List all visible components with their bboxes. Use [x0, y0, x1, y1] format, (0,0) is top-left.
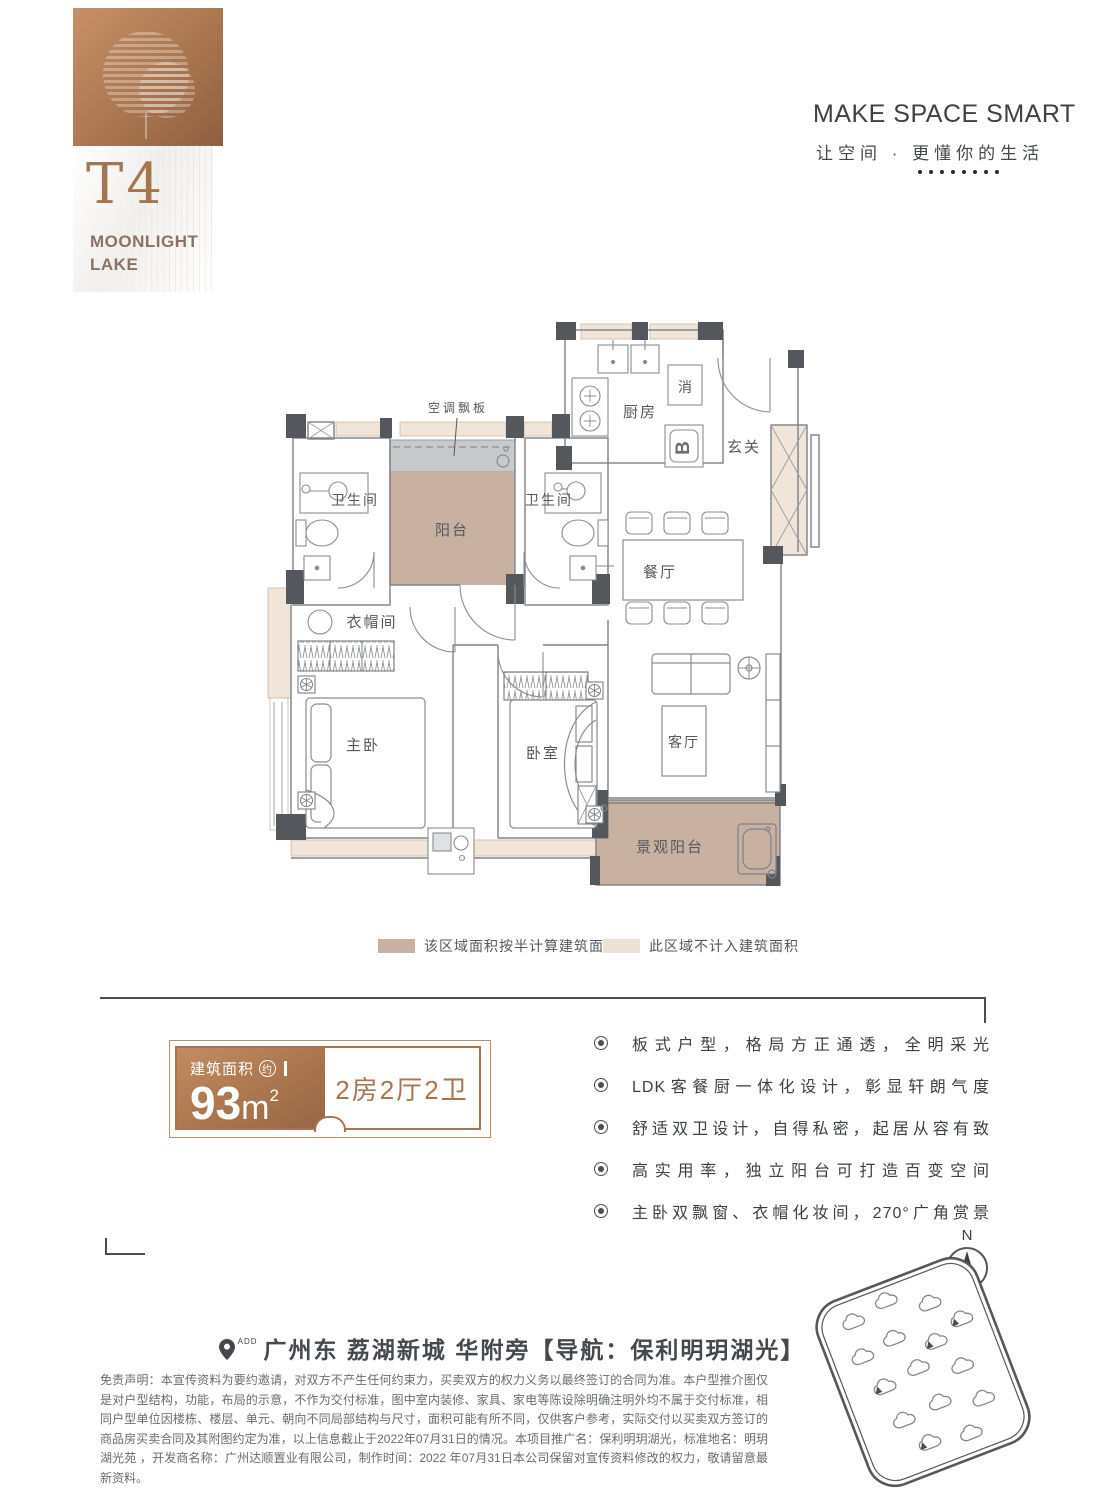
- fridge-label: B: [673, 441, 694, 455]
- bedroom-bed: [510, 700, 597, 828]
- project-name-line1: MOONLIGHT: [90, 230, 198, 253]
- legend-half-area: 该区域面积按半计算建筑面积: [378, 936, 619, 956]
- divider-rule: [100, 997, 986, 999]
- room-label-bath-left: 卫生间: [331, 492, 379, 508]
- disclaimer-text: 免责声明：本宣传资料为要约邀请，对双方不产生任何约束力，买卖双方的权力义务以最终…: [100, 1371, 768, 1488]
- ac-board-annotation: 空调飘板: [428, 401, 488, 415]
- room-label-bath-right: 卫生间: [525, 492, 573, 508]
- room-label-dining: 餐厅: [643, 564, 677, 581]
- legend-excluded-area-label: 此区域不计入建筑面积: [649, 936, 799, 956]
- approx-mark: 约: [259, 1060, 276, 1077]
- spec-area-panel: 建筑面积 约 93m2: [177, 1048, 325, 1128]
- room-label-bedroom: 卧室: [526, 745, 560, 762]
- location-pin-icon: [219, 1339, 235, 1360]
- unit-code: T4: [86, 152, 165, 217]
- room-label-foyer: 玄关: [727, 439, 761, 456]
- corridor-basin: [428, 828, 474, 874]
- feature-list: 板式户型，格局方正通透，全明采光 LDK客餐厨一体化设计，彰显轩朗气度 舒适双卫…: [594, 1022, 990, 1232]
- room-label-kitchen: 厨房: [623, 404, 657, 421]
- feature-item: LDK客餐厨一体化设计，彰显轩朗气度: [594, 1064, 990, 1106]
- area-bar-decor: [284, 1061, 287, 1076]
- legend-half-area-label: 该区域面积按半计算建筑面积: [424, 936, 619, 956]
- room-label-balcony: 阳台: [435, 522, 469, 539]
- spec-layout: 2房2厅2卫: [335, 1070, 468, 1107]
- compass-label: N: [962, 1227, 973, 1244]
- address-text: 广州东 荔湖新城 华附旁【导航：保利明玥湖光】: [264, 1337, 806, 1363]
- room-label-view-balcony: 景观阳台: [636, 839, 704, 856]
- decor-dots: [918, 170, 999, 174]
- bullet-icon: [594, 1204, 608, 1218]
- bullet-icon: [594, 1036, 608, 1050]
- wardrobes: [298, 641, 588, 700]
- bullet-icon: [594, 1120, 608, 1134]
- site-plot: [809, 1250, 1038, 1492]
- legend-excluded-area-swatch: [603, 939, 640, 953]
- room-label-cloakroom: 衣帽间: [346, 614, 397, 631]
- spec-area-value: 93m2: [190, 1080, 325, 1126]
- feature-item: 板式户型，格局方正通透，全明采光: [594, 1022, 990, 1064]
- extinguisher-label: 消: [678, 379, 692, 395]
- living-furniture: [652, 654, 780, 792]
- ac-board-zone: [390, 440, 515, 472]
- brand-logo-square: [73, 8, 223, 146]
- cloakroom-stool: [308, 610, 332, 634]
- master-bed: [306, 698, 425, 828]
- slogan-cn: 让空间 · 更懂你的生活: [816, 139, 1044, 164]
- bullet-icon: [594, 1078, 608, 1092]
- corner-mark: [105, 1238, 145, 1255]
- floor-plan: 消 B: [260, 300, 844, 900]
- address-add-tag: ADD: [238, 1337, 258, 1346]
- location-map: N: [795, 1222, 1095, 1492]
- dining-table: [623, 540, 743, 600]
- project-name-line2: LAKE: [90, 253, 198, 276]
- legend-excluded-area: 此区域不计入建筑面积: [603, 936, 799, 956]
- room-label-living: 客厅: [668, 734, 700, 750]
- bullet-icon: [594, 1162, 608, 1176]
- legend-half-area-swatch: [378, 939, 415, 953]
- project-name: MOONLIGHT LAKE: [90, 230, 198, 276]
- room-label-master: 主卧: [346, 737, 380, 754]
- spec-area-label: 建筑面积: [190, 1058, 254, 1079]
- moon-logo-icon: [73, 8, 223, 146]
- divider-rule-hook: [984, 997, 986, 1023]
- feature-item: 高实用率，独立阳台可打造百变空间: [594, 1148, 990, 1190]
- slogan-en: MAKE SPACE SMART: [813, 100, 1076, 129]
- feature-item: 舒适双卫设计，自得私密，起居从容有致: [594, 1106, 990, 1148]
